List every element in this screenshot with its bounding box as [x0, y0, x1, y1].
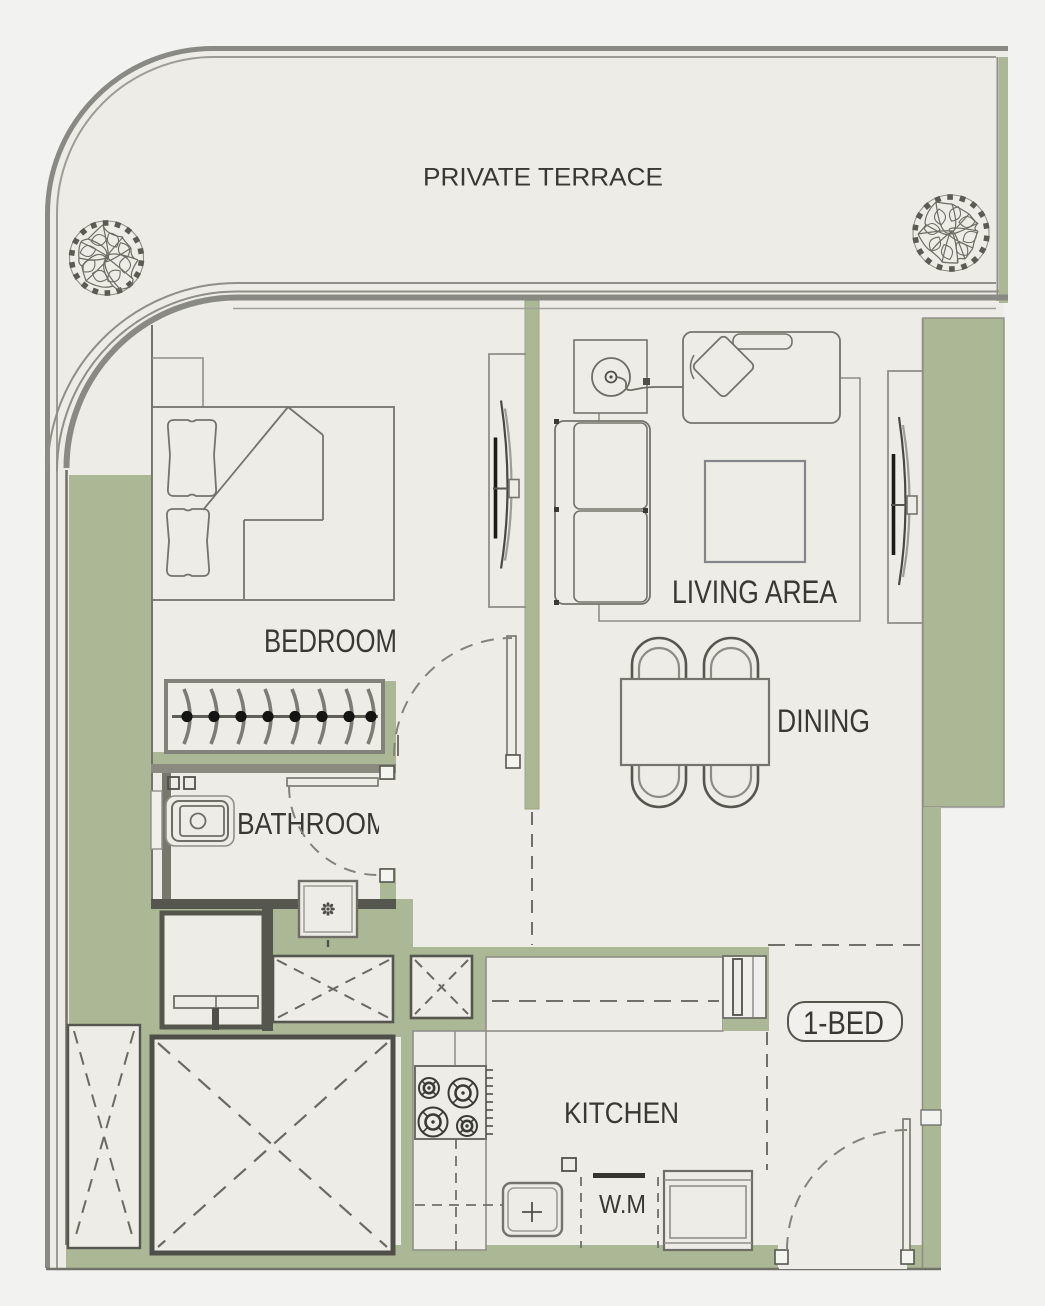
svg-text:DINING: DINING	[777, 703, 870, 739]
svg-text:PRIVATE TERRACE: PRIVATE TERRACE	[423, 164, 663, 192]
svg-text:BATHROOM: BATHROOM	[237, 806, 388, 841]
svg-text:KITCHEN: KITCHEN	[564, 1097, 679, 1130]
svg-text:BEDROOM: BEDROOM	[264, 623, 397, 659]
svg-text:W.M: W.M	[599, 1189, 646, 1219]
svg-text:1-BED: 1-BED	[803, 1005, 884, 1041]
svg-text:LIVING AREA: LIVING AREA	[672, 574, 838, 610]
